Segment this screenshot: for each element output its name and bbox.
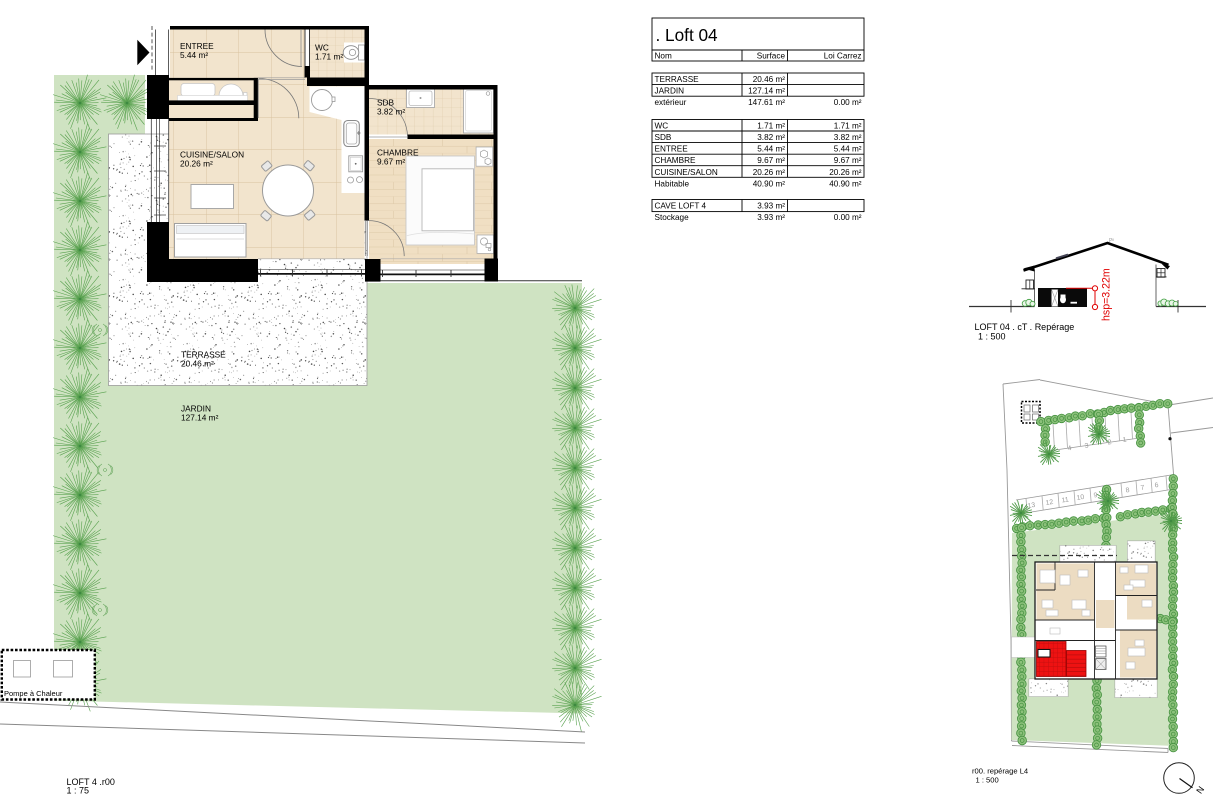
svg-text:Pᴵᴵ: Pᴵᴵ xyxy=(1109,238,1114,244)
svg-text:11: 11 xyxy=(1061,496,1069,504)
svg-text:3.93 m²: 3.93 m² xyxy=(757,213,785,222)
svg-text:. Loft 04: . Loft 04 xyxy=(656,25,719,45)
svg-text:3.82 m²: 3.82 m² xyxy=(757,133,785,142)
svg-text:Habitable: Habitable xyxy=(655,179,690,188)
svg-text:147.61 m²: 147.61 m² xyxy=(748,98,785,107)
svg-text:20.26 m²: 20.26 m² xyxy=(753,168,786,177)
svg-text:1 : 500: 1 : 500 xyxy=(976,776,999,785)
svg-text:CHAMBRE: CHAMBRE xyxy=(655,156,696,165)
svg-text:127.14 m²: 127.14 m² xyxy=(181,413,219,423)
svg-text:CAVE LOFT 4: CAVE LOFT 4 xyxy=(655,201,707,210)
svg-text:Surface: Surface xyxy=(757,51,786,60)
svg-text:ENTREE: ENTREE xyxy=(655,145,689,154)
svg-text:20.46 m²: 20.46 m² xyxy=(181,359,214,369)
svg-text:LOFT 04 . cT . Repérage: LOFT 04 . cT . Repérage xyxy=(975,322,1075,332)
svg-text:3.82 m²: 3.82 m² xyxy=(377,107,405,117)
svg-text:5.44 m²: 5.44 m² xyxy=(757,145,785,154)
svg-text:9.67 m²: 9.67 m² xyxy=(377,157,405,167)
svg-text:SDB: SDB xyxy=(655,133,672,142)
svg-text:Stockage: Stockage xyxy=(655,213,690,222)
svg-text:TERRASSE: TERRASSE xyxy=(655,75,700,84)
svg-text:3.82 m²: 3.82 m² xyxy=(834,133,862,142)
svg-text:0.00 m²: 0.00 m² xyxy=(834,213,862,222)
svg-text:Loi Carrez: Loi Carrez xyxy=(824,51,862,60)
svg-text:0.00 m²: 0.00 m² xyxy=(834,98,862,107)
svg-text:hsp=3.22m: hsp=3.22m xyxy=(1101,268,1113,321)
svg-text:9.67 m²: 9.67 m² xyxy=(834,156,862,165)
svg-text:5.44 m²: 5.44 m² xyxy=(834,145,862,154)
svg-text:40.90 m²: 40.90 m² xyxy=(829,179,862,188)
svg-text:3.93 m²: 3.93 m² xyxy=(757,201,785,210)
svg-text:1.71 m²: 1.71 m² xyxy=(315,52,343,62)
svg-text:12: 12 xyxy=(1045,499,1054,507)
svg-text:20.26 m²: 20.26 m² xyxy=(829,168,862,177)
svg-text:20.46 m²: 20.46 m² xyxy=(753,75,786,84)
svg-text:1 : 500: 1 : 500 xyxy=(978,332,1006,342)
svg-text:5.44 m²: 5.44 m² xyxy=(180,50,208,60)
svg-text:127.14 m²: 127.14 m² xyxy=(748,86,785,95)
svg-text:20.26 m²: 20.26 m² xyxy=(180,159,213,169)
svg-text:Nom: Nom xyxy=(655,51,672,60)
svg-text:1 : 75: 1 : 75 xyxy=(67,786,90,796)
svg-text:JARDIN: JARDIN xyxy=(655,86,685,95)
svg-text:Pompe à Chaleur: Pompe à Chaleur xyxy=(4,689,63,698)
svg-text:r00. repérage L4: r00. repérage L4 xyxy=(972,767,1028,776)
svg-text:extérieur: extérieur xyxy=(655,98,687,107)
svg-text:WC: WC xyxy=(655,122,669,131)
svg-text:1.71 m²: 1.71 m² xyxy=(834,122,862,131)
svg-text:9.67 m²: 9.67 m² xyxy=(757,156,785,165)
svg-text:1.71 m²: 1.71 m² xyxy=(757,122,785,131)
svg-text:40.90 m²: 40.90 m² xyxy=(753,179,786,188)
svg-text:10: 10 xyxy=(1076,494,1085,502)
svg-text:CUISINE/SALON: CUISINE/SALON xyxy=(655,168,718,177)
